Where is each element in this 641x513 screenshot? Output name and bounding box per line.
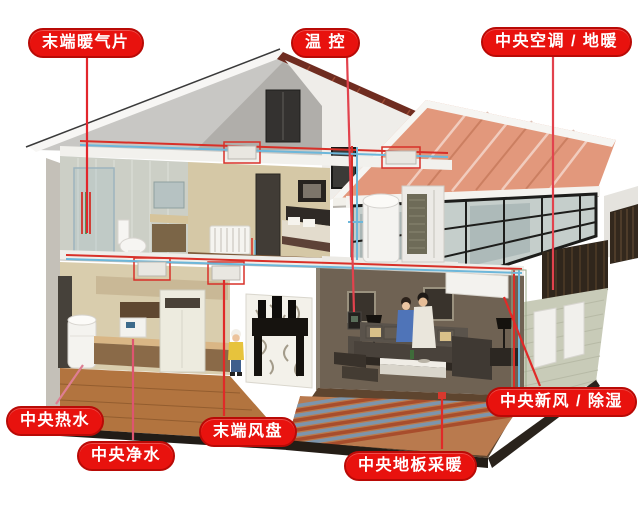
refrigerator [160,290,205,372]
heat-pump-outdoor-unit [402,186,444,262]
child-figure [228,329,244,376]
label-central-fresh-air-dehumidification: 中央新风 / 除湿 [486,387,637,417]
label-central-hot-water: 中央热水 [6,406,104,436]
thermostat [348,312,361,329]
bed [282,206,330,252]
label-central-floor-heating: 中央地板采暖 [344,451,477,481]
radiator [210,226,255,256]
living-room [318,268,524,396]
floor-heating-marker [438,392,446,399]
bathroom-mirror [154,182,184,208]
water-tank-outdoor [363,194,399,262]
diagram-canvas: 末端暖气片 温 控 中央空调 / 地暖 中央热水 中央净水 末端风盘 中央地板采… [0,0,641,513]
fresh-air-duct [446,272,508,298]
label-central-ac-floor-heating: 中央空调 / 地暖 [481,27,632,57]
hot-water-tank [68,315,96,368]
shower-enclosure [74,168,114,254]
label-thermostat: 温 控 [291,28,360,58]
bedroom [188,162,330,266]
label-central-water-purifier: 中央净水 [77,441,175,471]
left-wall-section [46,158,60,430]
far-right-wall [604,186,638,264]
brick-window [564,302,584,359]
brick-window [534,308,556,368]
house-cutaway-illustration [0,0,641,513]
label-terminal-fan-coil: 末端风盘 [199,417,297,447]
vanity-cabinet [152,224,186,252]
label-terminal-radiator: 末端暖气片 [28,28,144,58]
kitchen [58,262,230,375]
bedroom-door [256,174,280,258]
bathroom [60,156,188,258]
